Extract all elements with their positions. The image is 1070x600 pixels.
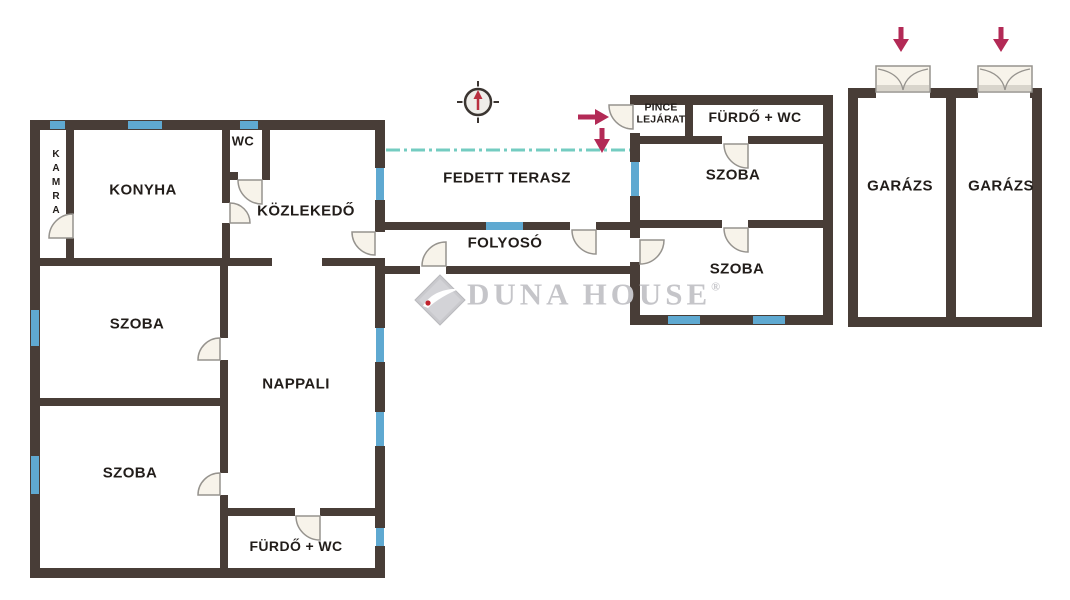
- door-arc-szoba2: [198, 473, 220, 495]
- door-arc-kozlekedo-folyoso: [352, 232, 375, 255]
- floor-plan-page: KAMRA KONYHA WC KÖZLEKEDŐ SZOBA SZOBA NA…: [0, 0, 1070, 600]
- door-arc-wc: [238, 180, 262, 204]
- room-label-szoba-1: SZOBA: [110, 316, 165, 333]
- room-label-pince-lejarat: PINCE LEJÁRAT: [636, 103, 685, 126]
- room-label-garazs-2: GARÁZS: [968, 178, 1034, 195]
- door-arc-szoba4-left: [640, 240, 664, 264]
- garage-entry-arrows: [893, 27, 1009, 52]
- door-arc-szoba1: [198, 338, 220, 360]
- room-label-nappali: NAPPALI: [262, 376, 330, 393]
- door-arc-terasz-folyoso: [572, 230, 596, 254]
- door-arc-furdo-main: [296, 516, 320, 540]
- room-label-konyha: KONYHA: [109, 182, 176, 199]
- watermark-brand-text: DUNA HOUSE®: [467, 277, 720, 313]
- room-label-szoba-3: SZOBA: [706, 167, 761, 184]
- room-label-kamra: KAMRA: [51, 149, 62, 219]
- room-label-szoba-2: SZOBA: [103, 465, 158, 482]
- garage-door-right: [978, 66, 1032, 92]
- room-label-furdo-wc-right: FÜRDŐ + WC: [708, 109, 801, 125]
- door-arc-szoba4-top: [724, 228, 748, 252]
- watermark-logo-diamond: [415, 275, 465, 325]
- room-label-folyoso: FOLYOSÓ: [468, 235, 543, 252]
- door-arc-folyoso-exterior: [422, 242, 446, 266]
- pince-line-2: LEJÁRAT: [636, 114, 685, 126]
- wall-segments: [30, 88, 1042, 578]
- compass-north-icon: [457, 81, 499, 123]
- room-label-furdo-wc-main: FÜRDŐ + WC: [249, 538, 342, 554]
- registered-trademark-symbol: ®: [711, 280, 720, 294]
- room-label-wc: WC: [232, 134, 254, 149]
- room-label-garazs-1: GARÁZS: [867, 178, 933, 195]
- room-label-fedett-terasz: FEDETT TERASZ: [443, 170, 571, 187]
- door-arc-konyha: [230, 203, 250, 223]
- garage-door-left: [876, 66, 930, 92]
- watermark-name: DUNA HOUSE: [467, 277, 711, 312]
- door-arc-pince-entrance: [609, 105, 633, 129]
- entrance-direction-arrows: [578, 109, 610, 153]
- door-arc-szoba3: [724, 144, 748, 168]
- pince-line-1: PINCE: [636, 103, 685, 115]
- room-label-szoba-4: SZOBA: [710, 261, 765, 278]
- room-label-kozlekedo: KÖZLEKEDŐ: [257, 203, 355, 220]
